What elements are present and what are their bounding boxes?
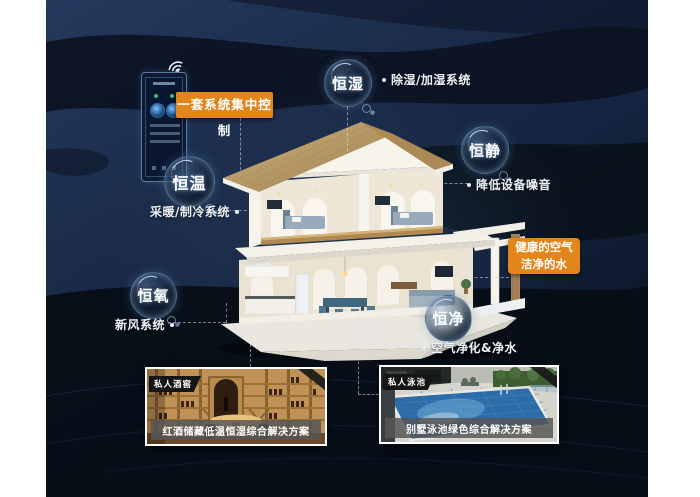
connector-line bbox=[250, 309, 251, 367]
central-control-label: 一套系统集中控制 bbox=[176, 92, 273, 118]
card-badge: 私人酒窖 bbox=[149, 376, 201, 392]
connector-line bbox=[168, 322, 226, 323]
bubble-text: 恒氧 bbox=[137, 285, 169, 306]
connector-line bbox=[226, 303, 227, 323]
bubble-text: 恒静 bbox=[469, 140, 501, 161]
connector-line bbox=[382, 290, 383, 345]
card-caption: 别墅泳池绿色综合解决方案 bbox=[385, 418, 553, 438]
connector-line bbox=[358, 394, 379, 395]
bubble-constant-humidity: 恒湿 bbox=[324, 59, 372, 107]
artboard: 一套系统集中控制 恒湿 恒静 恒温 恒氧 恒净 除湿/加湿系统 降低设备噪音 采… bbox=[46, 0, 648, 497]
label-air-water-purification: 空气净化&净水 bbox=[422, 339, 517, 356]
connector-line bbox=[358, 312, 359, 394]
pool-card: 私人泳池 别墅泳池绿色综合解决方案 bbox=[379, 365, 559, 444]
connector-dot-icon bbox=[235, 210, 239, 214]
label-fresh-air-system: 新风系统 bbox=[115, 316, 174, 333]
connector-dot-icon bbox=[382, 78, 386, 82]
wine-cellar-card: 私人酒窖 红酒储藏低温恒湿综合解决方案 bbox=[145, 367, 327, 446]
label-dehumidify-humidify-system: 除湿/加湿系统 bbox=[382, 71, 471, 88]
connector-dot-icon bbox=[422, 346, 426, 350]
card-badge: 私人泳池 bbox=[383, 374, 435, 390]
connector-dot-icon bbox=[170, 323, 174, 327]
bubble-text: 恒温 bbox=[172, 170, 206, 194]
bubble-text: 恒湿 bbox=[332, 73, 364, 94]
connector-line bbox=[434, 183, 468, 184]
connector-dot-icon bbox=[467, 183, 471, 187]
card-caption: 红酒储藏低温恒湿综合解决方案 bbox=[151, 420, 321, 440]
bubble-constant-temperature: 恒温 bbox=[164, 156, 215, 207]
healthy-air-clean-water-label: 健康的空气 洁净的水 bbox=[508, 238, 580, 274]
bubble-constant-quiet: 恒静 bbox=[461, 126, 509, 174]
connector-line bbox=[459, 277, 509, 278]
control-knob-icon bbox=[150, 103, 165, 118]
connector-line bbox=[382, 345, 424, 346]
bubble-text: 恒净 bbox=[432, 308, 464, 329]
connector-line bbox=[240, 118, 241, 170]
bubble-constant-oxygen: 恒氧 bbox=[130, 272, 177, 319]
connector-line bbox=[347, 107, 348, 162]
infographic-canvas: 一套系统集中控制 恒湿 恒静 恒温 恒氧 恒净 除湿/加湿系统 降低设备噪音 采… bbox=[0, 0, 700, 497]
wifi-icon bbox=[166, 55, 186, 73]
bubble-constant-purity: 恒净 bbox=[425, 295, 472, 342]
label-heating-cooling-system: 采暖/制冷系统 bbox=[150, 203, 239, 220]
label-reduce-equipment-noise: 降低设备噪音 bbox=[467, 176, 551, 193]
